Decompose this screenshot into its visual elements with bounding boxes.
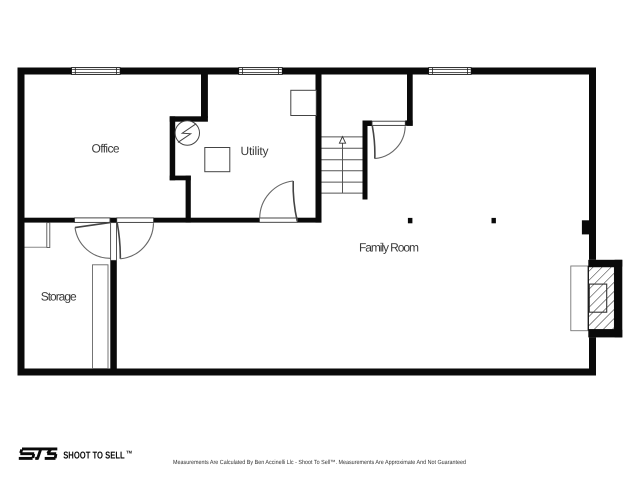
svg-text:SHOOT TO SELL: SHOOT TO SELL (63, 450, 124, 461)
svg-text:Measurements Are Calculated By: Measurements Are Calculated By Ben Accin… (173, 459, 466, 466)
svg-text:Office: Office (92, 142, 120, 156)
svg-text:Family Room: Family Room (359, 240, 419, 254)
svg-text:TM: TM (126, 450, 132, 455)
svg-text:Storage: Storage (41, 290, 77, 304)
svg-text:Utility: Utility (241, 144, 269, 158)
